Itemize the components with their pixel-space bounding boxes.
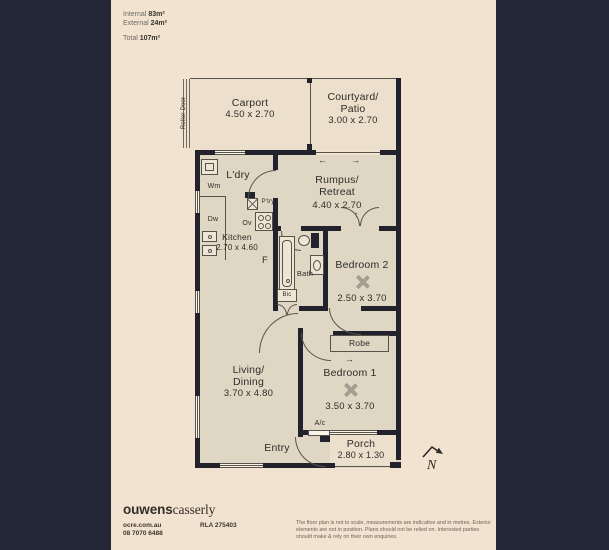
porch-front-edge	[335, 466, 396, 467]
bedroom2-name: Bedroom 2	[324, 259, 400, 271]
carport-name: Carport	[190, 97, 310, 109]
plan-top-outline	[190, 78, 396, 79]
area-internal-label: Internal	[123, 11, 146, 18]
bedroom1-dims: 3.50 x 3.70	[304, 401, 396, 412]
courtyard-dims: 3.00 x 2.70	[310, 115, 396, 126]
air-conditioner-unit	[308, 430, 330, 436]
roller-door-label: Roller Door	[181, 83, 191, 143]
agency-phone: 08 7070 6488	[123, 530, 163, 538]
kitchen-dims: 2.70 x 4.60	[203, 243, 271, 253]
area-external-label: External	[123, 20, 149, 27]
ceiling-fan-icon	[354, 274, 370, 290]
agency-logo: ouwenscasserly	[123, 503, 215, 517]
courtyard-name2: Patio	[310, 103, 396, 115]
dishwasher-label: Dw	[201, 216, 225, 224]
area-external: External 24m²	[123, 20, 167, 28]
living-dims: 3.70 x 4.80	[201, 388, 296, 399]
burner-3	[258, 223, 264, 229]
bedroom2-dims: 2.50 x 3.70	[324, 293, 400, 304]
courtyard-label: Courtyard/ Patio 3.00 x 2.70	[310, 91, 396, 126]
carport-dims: 4.50 x 2.70	[190, 109, 310, 120]
cooktop-icon	[255, 212, 273, 231]
oven-label: Ov	[239, 220, 255, 228]
double-door-arrow-icon: ↑	[354, 211, 358, 219]
living-name2: Dining	[201, 376, 296, 388]
area-internal: Internal 83m²	[123, 11, 165, 19]
agency-logo-serif: casserly	[173, 502, 216, 517]
north-letter: N	[426, 458, 437, 473]
kitchen-bench-edge-h	[200, 196, 226, 197]
fridge-label: F	[257, 255, 273, 266]
washing-machine-label: Wm	[201, 183, 227, 191]
laundry-wall-stub	[273, 155, 278, 170]
bathtub-drain	[286, 279, 290, 283]
living-window	[220, 463, 263, 468]
sliding-door-arrow-left-icon: ←	[318, 156, 327, 164]
hall-wall-a	[299, 306, 328, 311]
living-name: Living/	[201, 364, 296, 376]
rumpus-label: Rumpus/ Retreat 4.40 x 2.70	[278, 174, 396, 211]
air-conditioner-label: A/c	[307, 420, 333, 428]
hall-wall-b	[361, 306, 396, 311]
roller-door-text: Roller Door	[181, 83, 188, 143]
bathtub-icon	[279, 236, 295, 291]
laundry-name: L'dry	[213, 169, 263, 181]
rumpus-wall-a	[273, 226, 281, 231]
rumpus-wall-c	[379, 226, 396, 231]
porch-corner-post	[390, 462, 401, 468]
disclaimer-text: The floor plan is not to scale, measurem…	[296, 520, 492, 540]
rumpus-name: Rumpus/	[278, 174, 396, 186]
area-total-value: 107m²	[140, 35, 160, 42]
courtyard-name: Courtyard/	[310, 91, 396, 103]
toilet-nib-wall	[311, 233, 319, 248]
left-window-2	[195, 291, 200, 313]
carport-label: Carport 4.50 x 2.70	[190, 97, 310, 120]
left-window-3	[195, 396, 200, 438]
robe-label: Robe	[330, 339, 389, 349]
rumpus-wall-b	[301, 226, 341, 231]
bedroom1-window	[330, 430, 377, 435]
bedroom2-label: Bedroom 2 2.50 x 3.70	[324, 259, 400, 304]
robe-sliding-arrow-icon: →	[345, 355, 354, 363]
bedroom1-name: Bedroom 1	[304, 367, 396, 379]
laundry-window	[215, 150, 245, 155]
living-bedroom1-wall	[298, 328, 303, 437]
divider-post-top	[307, 78, 312, 83]
rumpus-dims: 4.40 x 2.70	[278, 200, 396, 211]
agency-logo-bold: ouwens	[123, 502, 173, 517]
floor-plan: ← → ↑ → Carport 4.50 x 2.70 Courtyard/ P…	[183, 78, 403, 473]
left-wall-2	[195, 213, 200, 291]
burner-1	[258, 215, 264, 221]
area-external-value: 24m²	[151, 20, 167, 27]
left-wall-1	[195, 150, 200, 191]
bedroom1-bottom-wall-b	[377, 430, 396, 435]
floorplan-page: { "summary": { "rows": [ {"label": "Inte…	[0, 0, 609, 550]
area-total-label: Total	[123, 35, 138, 42]
sliding-door-arrow-right-icon: →	[351, 156, 360, 164]
bedroom1-label: Bedroom 1 3.50 x 3.70	[304, 367, 396, 412]
rumpus-name2: Retreat	[278, 186, 396, 198]
kitchen-name: Kitchen	[203, 233, 271, 243]
left-window-1	[195, 191, 200, 213]
area-internal-value: 83m²	[148, 11, 164, 18]
ceiling-fan-icon-2	[342, 382, 358, 398]
porch-dims: 2.80 x 1.30	[328, 450, 394, 461]
living-label: Living/ Dining 3.70 x 4.80	[201, 364, 296, 399]
laundry-label: L'dry	[213, 169, 263, 181]
agency-rla: RLA 275403	[200, 522, 237, 530]
porch-name: Porch	[328, 438, 394, 450]
toilet-icon	[298, 235, 310, 246]
cupboard-label: Bic	[277, 292, 297, 299]
agency-website: ocre.com.au	[123, 522, 161, 530]
north-compass-icon: N	[419, 441, 447, 473]
bath-label: Bath	[289, 270, 321, 278]
left-wall-3	[195, 313, 200, 396]
kitchen-label: Kitchen 2.70 x 4.60	[203, 233, 271, 252]
sliding-door-track	[316, 152, 380, 153]
entry-label: Entry	[247, 442, 307, 454]
pantry-label: P'try	[257, 199, 279, 206]
area-total: Total 107m²	[123, 35, 160, 43]
burner-2	[265, 215, 271, 221]
top-wall-c	[380, 150, 396, 155]
burner-4	[265, 223, 271, 229]
porch-label: Porch 2.80 x 1.30	[328, 438, 394, 461]
top-wall-b	[245, 150, 316, 155]
bottom-wall-a	[195, 463, 220, 468]
